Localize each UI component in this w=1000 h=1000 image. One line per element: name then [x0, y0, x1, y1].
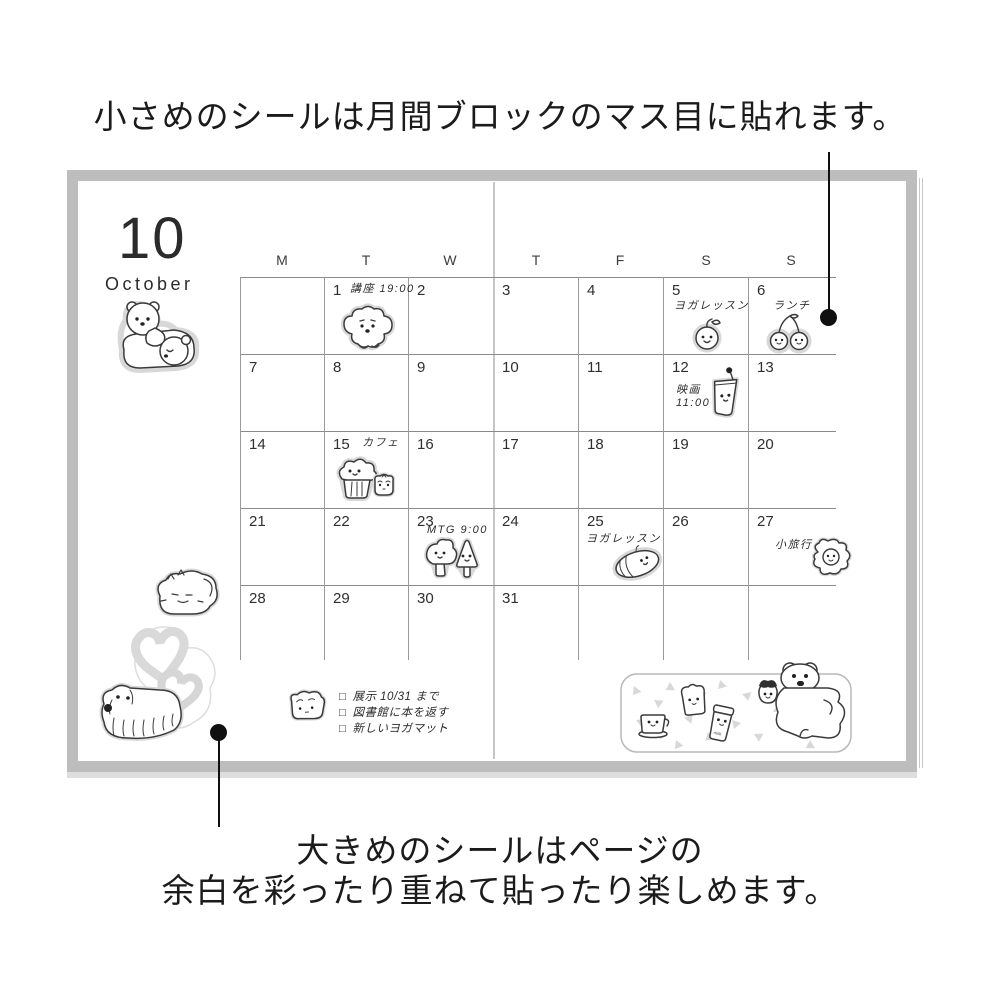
date-number: 26	[672, 513, 689, 530]
checkbox-icon: □	[339, 723, 346, 735]
grid-line	[578, 277, 579, 660]
month-name: October	[105, 274, 194, 295]
date-number: 4	[587, 282, 595, 299]
date-number: 19	[672, 436, 689, 453]
strawberry-sticker	[759, 680, 777, 703]
date-number: 8	[333, 359, 341, 376]
date-number: 22	[333, 513, 350, 530]
date-number: 16	[417, 436, 434, 453]
event-note: ランチ	[773, 300, 811, 313]
date-number: 30	[417, 590, 434, 607]
date-number: 18	[587, 436, 604, 453]
day-header: W	[443, 252, 456, 268]
fluffy-cat-sticker	[148, 566, 224, 624]
date-number: 29	[333, 590, 350, 607]
date-number: 3	[502, 282, 510, 299]
date-number: 2	[417, 282, 425, 299]
shaggy-dog-sticker	[94, 678, 186, 744]
checklist-item: □図書館に本を返す	[339, 705, 448, 721]
toast-note-bread-sticker	[284, 686, 332, 728]
product-photo-stage: 小さめのシールは月間ブロックのマス目に貼れます。 10 October □展示 …	[0, 0, 1000, 1000]
date-number: 13	[757, 359, 774, 376]
event-note: MTG 9:00	[427, 524, 488, 537]
event-note: ヨガレッスン	[586, 533, 661, 546]
checklist-item: □新しいヨガマット	[339, 721, 448, 737]
date-number: 15	[333, 436, 350, 453]
day-header: M	[276, 252, 288, 268]
day-header: S	[701, 252, 710, 268]
date-number: 12	[672, 359, 689, 376]
day-header: T	[532, 252, 541, 268]
callout-line-bottom	[218, 740, 220, 827]
cherries-sticker	[766, 311, 812, 353]
coffee-cup-sticker	[639, 715, 669, 738]
day-header: F	[616, 252, 625, 268]
bread-roll-sticker	[610, 542, 664, 584]
grid-line	[408, 277, 409, 660]
drink-cup-sticker	[706, 366, 742, 420]
day-header: T	[362, 252, 371, 268]
date-number: 7	[249, 359, 257, 376]
poodle-dog-sticker	[336, 302, 400, 354]
mini-bread-sticker	[369, 470, 399, 500]
callout-line-top	[828, 152, 830, 312]
picnic-cluster-sticker: milk	[618, 664, 856, 756]
date-number: 21	[249, 513, 266, 530]
checkbox-icon: □	[339, 707, 346, 719]
date-number: 1	[333, 282, 341, 299]
date-number: 25	[587, 513, 604, 530]
event-note: 小旅行	[775, 539, 813, 552]
grid-line	[748, 277, 749, 660]
caption-bottom-line2: 余白を彩ったり重ねて貼ったり楽しめます。	[0, 864, 1000, 912]
page-gutter-line	[493, 182, 495, 759]
date-number: 9	[417, 359, 425, 376]
date-number: 24	[502, 513, 519, 530]
event-note: 講座 19:00	[350, 283, 415, 296]
event-note: 映画11:00	[676, 384, 710, 410]
date-number: 28	[249, 590, 266, 607]
event-note: ヨガレッスン	[674, 300, 749, 313]
grid-line	[240, 277, 836, 278]
date-number: 6	[757, 282, 765, 299]
toast-sticker	[681, 683, 707, 715]
grid-line	[240, 354, 836, 355]
grid-line	[240, 431, 836, 432]
grid-line	[324, 277, 325, 660]
checkbox-icon: □	[339, 691, 346, 703]
date-number: 14	[249, 436, 266, 453]
date-number: 17	[502, 436, 519, 453]
fried-egg-sticker	[808, 536, 854, 580]
polar-bears-sticker	[110, 298, 202, 380]
day-header: S	[786, 252, 795, 268]
event-note: カフェ	[362, 437, 400, 450]
page-edge-stripes	[917, 178, 924, 768]
grid-line	[663, 277, 664, 660]
trees-sticker	[421, 536, 479, 584]
callout-dot-top	[820, 309, 837, 326]
month-number: 10	[118, 210, 187, 268]
date-number: 11	[587, 359, 603, 376]
date-number: 20	[757, 436, 774, 453]
grid-line	[240, 585, 836, 586]
apple-sticker	[691, 316, 723, 352]
date-number: 27	[757, 513, 774, 530]
checklist-item: □展示 10/31 まで	[339, 689, 448, 705]
date-number: 10	[502, 359, 519, 376]
date-number: 31	[502, 590, 519, 607]
grid-line	[240, 277, 241, 660]
checklist: □展示 10/31 まで□図書館に本を返す□新しいヨガマット	[339, 689, 448, 737]
caption-top: 小さめのシールは月間ブロックのマス目に貼れます。	[0, 90, 1000, 138]
grid-line	[240, 508, 836, 509]
date-number: 5	[672, 282, 680, 299]
